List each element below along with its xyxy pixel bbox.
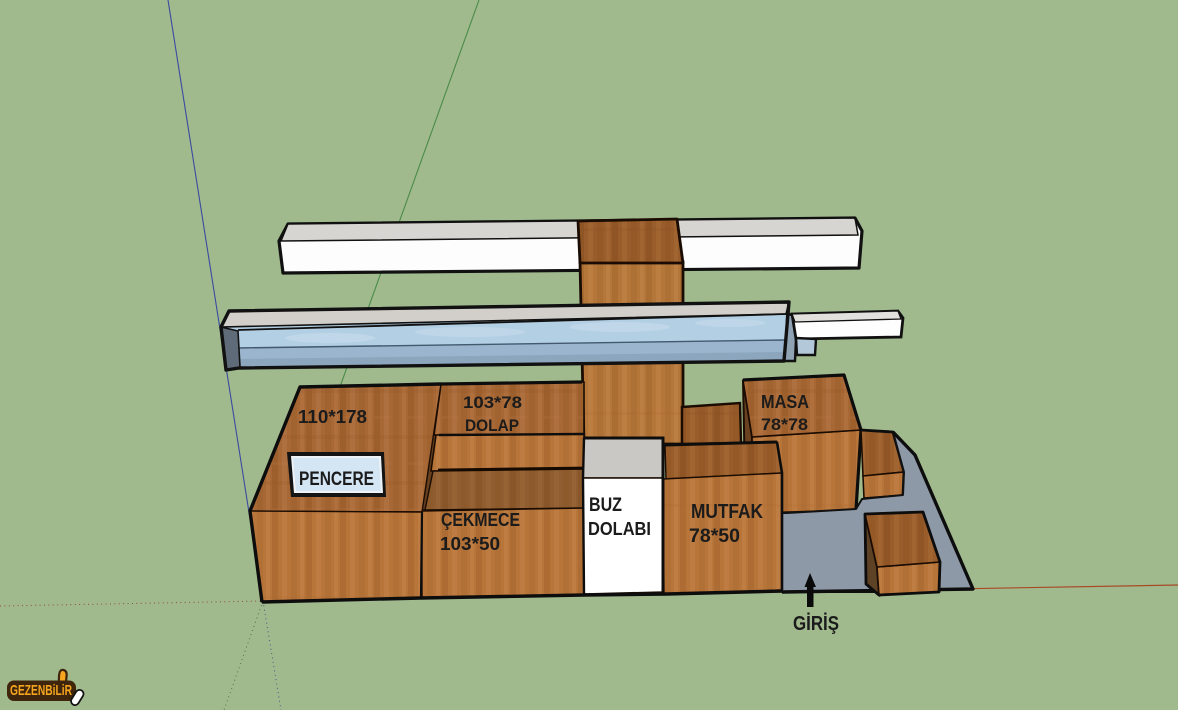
svg-text:MUTFAK: MUTFAK (691, 501, 763, 523)
svg-text:GİRİŞ: GİRİŞ (793, 612, 839, 635)
svg-text:PENCERE: PENCERE (299, 469, 374, 490)
svg-text:ÇEKMECE: ÇEKMECE (441, 510, 520, 530)
svg-text:103*50: 103*50 (440, 534, 500, 554)
svg-text:103*78: 103*78 (463, 393, 522, 412)
svg-text:78*50: 78*50 (689, 526, 740, 547)
svg-text:MASA: MASA (761, 392, 809, 412)
svg-text:DOLAP: DOLAP (465, 416, 519, 435)
svg-text:110*178: 110*178 (298, 407, 367, 427)
svg-text:DOLABI: DOLABI (588, 519, 651, 539)
svg-text:78*78: 78*78 (761, 415, 808, 434)
svg-text:BUZ: BUZ (589, 495, 622, 516)
svg-text:GEZENBiLiR: GEZENBiLiR (10, 682, 72, 699)
